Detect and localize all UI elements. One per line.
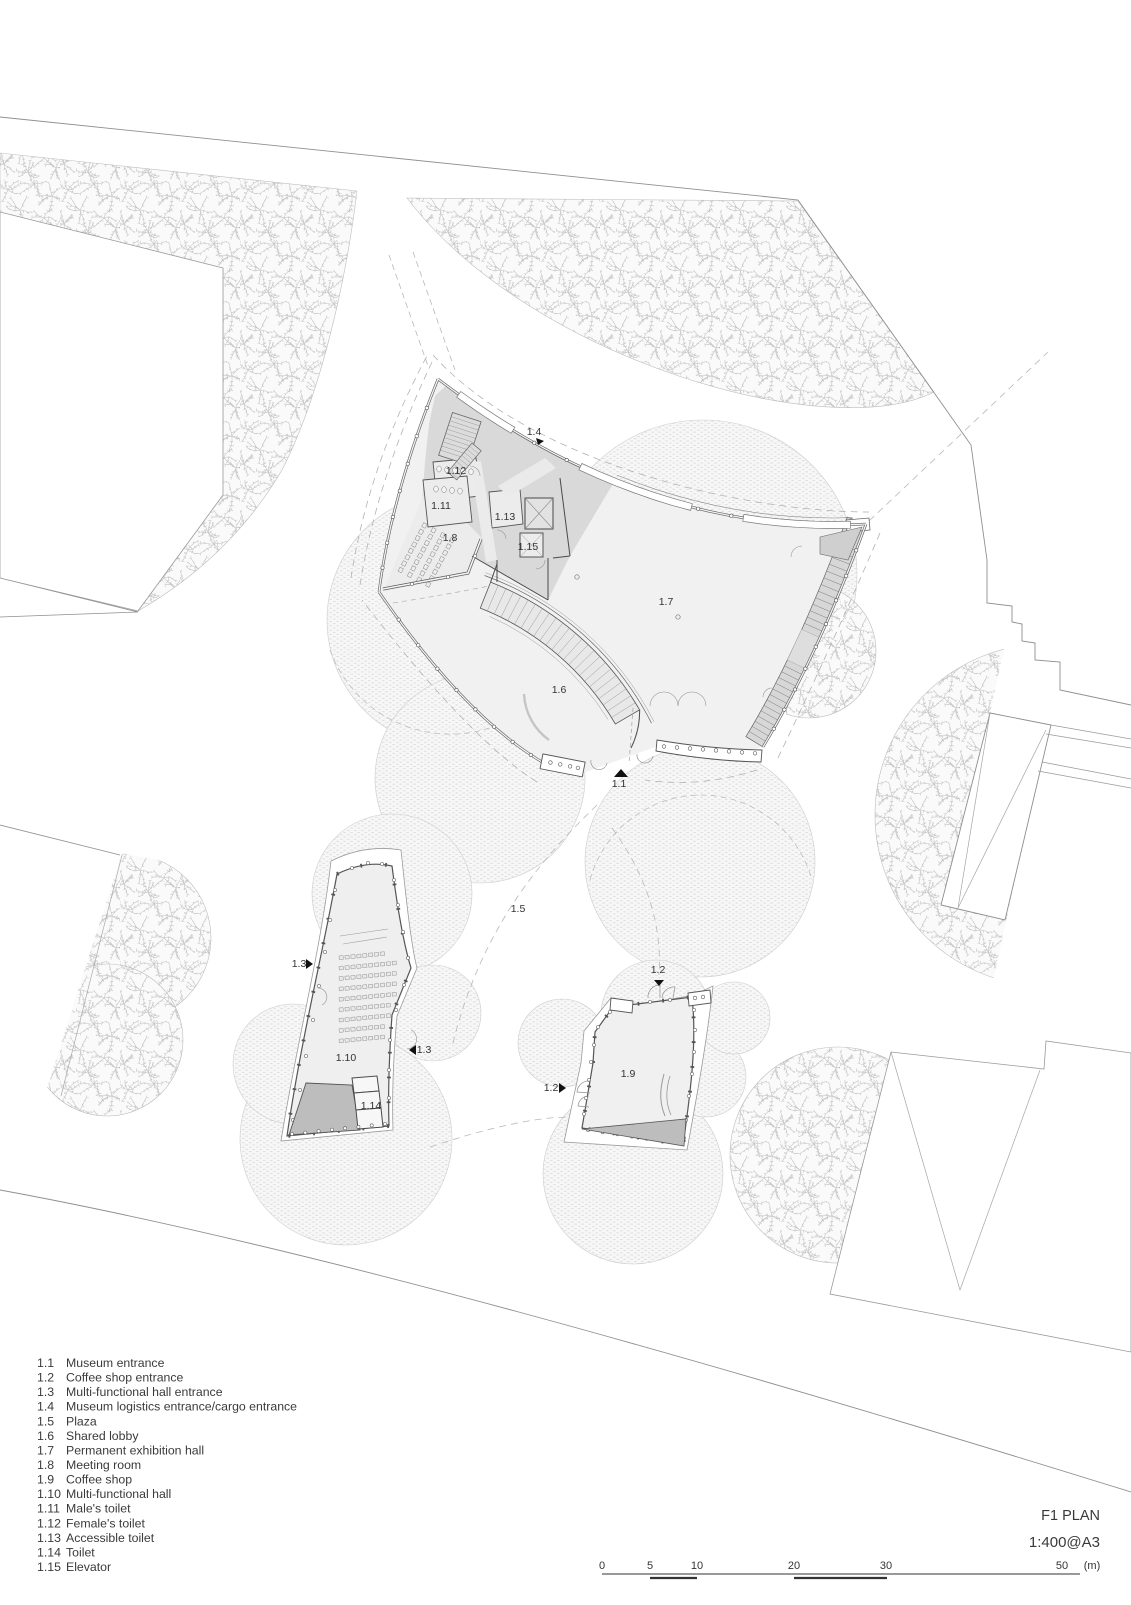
svg-text:1.9: 1.9	[621, 1068, 636, 1080]
svg-text:1.14: 1.14	[361, 1100, 382, 1112]
svg-text:50: 50	[1056, 1560, 1068, 1572]
svg-text:1.5: 1.5	[511, 903, 526, 915]
svg-text:1.7: 1.7	[659, 596, 674, 608]
svg-text:Elevator: Elevator	[66, 1560, 111, 1574]
svg-text:1.7: 1.7	[37, 1443, 54, 1457]
svg-text:(m): (m)	[1084, 1560, 1101, 1572]
svg-text:Female's toilet: Female's toilet	[66, 1516, 145, 1530]
svg-text:1.12: 1.12	[446, 465, 467, 477]
svg-text:Toilet: Toilet	[66, 1545, 95, 1559]
svg-text:Plaza: Plaza	[66, 1414, 97, 1428]
svg-text:1.5: 1.5	[37, 1414, 54, 1428]
svg-text:1.8: 1.8	[443, 532, 458, 544]
svg-text:0: 0	[599, 1560, 605, 1572]
svg-text:1.11: 1.11	[37, 1502, 60, 1516]
svg-text:Meeting room: Meeting room	[66, 1458, 141, 1472]
svg-text:1:400@A3: 1:400@A3	[1029, 1534, 1100, 1551]
svg-text:1.8: 1.8	[37, 1458, 54, 1472]
svg-text:Coffee shop entrance: Coffee shop entrance	[66, 1371, 184, 1385]
svg-text:1.2: 1.2	[651, 964, 666, 976]
svg-text:F1 PLAN: F1 PLAN	[1041, 1508, 1100, 1524]
svg-text:Multi-functional hall: Multi-functional hall	[66, 1487, 171, 1501]
svg-text:1.15: 1.15	[37, 1560, 61, 1574]
svg-text:1.10: 1.10	[37, 1487, 61, 1501]
svg-text:1.9: 1.9	[37, 1473, 54, 1487]
svg-text:1.13: 1.13	[495, 511, 516, 523]
svg-text:5: 5	[647, 1560, 653, 1572]
svg-text:1.12: 1.12	[37, 1516, 61, 1530]
svg-text:1.6: 1.6	[552, 684, 567, 696]
svg-text:1.2: 1.2	[37, 1371, 54, 1385]
svg-text:1.1: 1.1	[37, 1356, 54, 1370]
svg-text:1.15: 1.15	[518, 541, 539, 553]
svg-text:1.4: 1.4	[37, 1400, 54, 1414]
svg-text:Accessible toilet: Accessible toilet	[66, 1531, 155, 1545]
svg-text:Multi-functional hall entrance: Multi-functional hall entrance	[66, 1385, 223, 1399]
svg-text:1.3: 1.3	[292, 958, 307, 970]
svg-text:1.14: 1.14	[37, 1545, 61, 1559]
svg-text:Permanent exhibition hall: Permanent exhibition hall	[66, 1443, 204, 1457]
svg-text:Museum entrance: Museum entrance	[66, 1356, 165, 1370]
svg-text:Male's toilet: Male's toilet	[66, 1502, 131, 1516]
svg-text:1.10: 1.10	[336, 1052, 357, 1064]
svg-text:1.2: 1.2	[544, 1082, 559, 1094]
svg-text:Shared lobby: Shared lobby	[66, 1429, 139, 1443]
svg-text:1.3: 1.3	[37, 1385, 54, 1399]
svg-text:1.11: 1.11	[431, 500, 451, 512]
svg-text:1.6: 1.6	[37, 1429, 54, 1443]
svg-text:1.3: 1.3	[417, 1044, 432, 1056]
svg-text:1.1: 1.1	[612, 778, 627, 790]
svg-text:10: 10	[691, 1560, 703, 1572]
svg-text:Museum logistics entrance/carg: Museum logistics entrance/cargo entrance	[66, 1400, 297, 1414]
svg-text:1.4: 1.4	[527, 426, 542, 438]
svg-text:20: 20	[788, 1560, 800, 1572]
svg-text:30: 30	[880, 1560, 892, 1572]
svg-text:1.13: 1.13	[37, 1531, 61, 1545]
svg-text:Coffee shop: Coffee shop	[66, 1473, 132, 1487]
